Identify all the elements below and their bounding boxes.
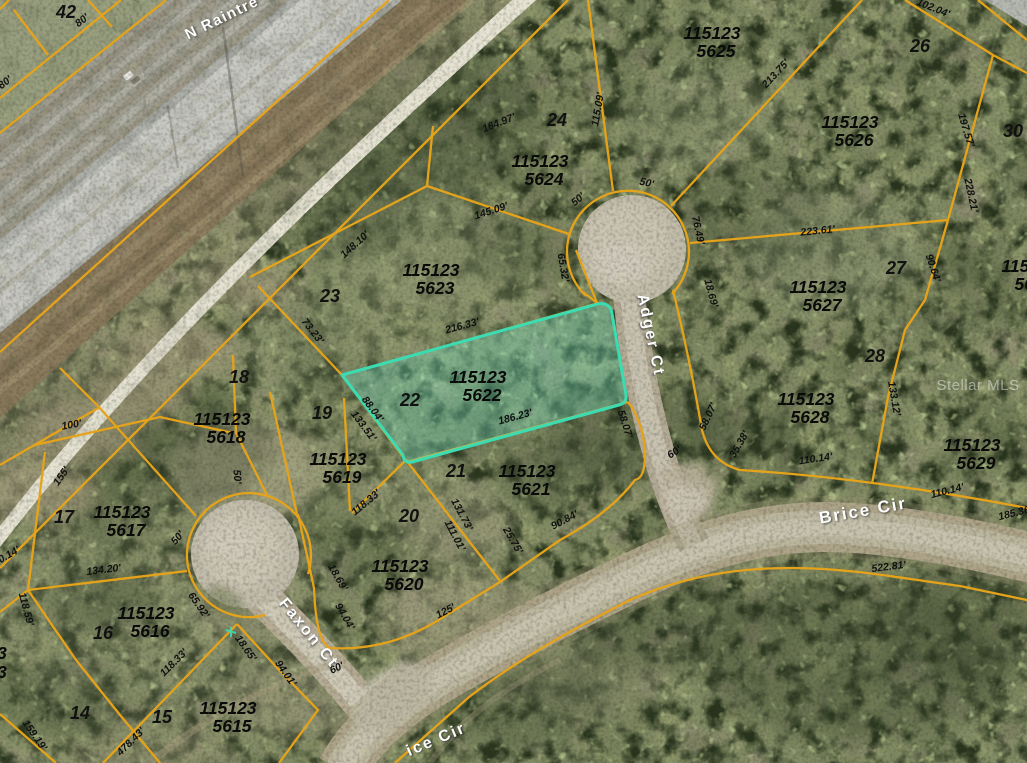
svg-text:115123: 115123: [777, 389, 834, 409]
svg-text:15: 15: [152, 707, 173, 727]
svg-text:115123: 115123: [402, 260, 459, 280]
svg-text:5622: 5622: [463, 385, 502, 405]
svg-text:5617: 5617: [107, 520, 147, 540]
svg-text:23: 23: [319, 286, 340, 306]
svg-text:115123: 115123: [193, 409, 250, 429]
svg-text:5623: 5623: [416, 278, 455, 298]
svg-text:115123: 115123: [199, 698, 256, 718]
svg-text:115123: 115123: [943, 435, 1000, 455]
svg-text:115123: 115123: [449, 367, 506, 387]
svg-text:115123: 115123: [1001, 256, 1027, 276]
svg-text:30: 30: [1003, 121, 1023, 141]
svg-text:5621: 5621: [512, 479, 551, 499]
svg-text:16: 16: [93, 623, 114, 643]
svg-text:42: 42: [55, 2, 76, 22]
svg-text:5627: 5627: [803, 295, 843, 315]
svg-text:115123: 115123: [498, 461, 555, 481]
svg-text:5619: 5619: [323, 467, 362, 487]
svg-text:21: 21: [445, 461, 466, 481]
svg-text:26: 26: [909, 36, 931, 56]
svg-text:24: 24: [546, 110, 567, 130]
svg-text:3: 3: [0, 662, 7, 682]
svg-text:17: 17: [54, 507, 75, 527]
svg-text:20: 20: [398, 506, 419, 526]
svg-text:5616: 5616: [131, 621, 170, 641]
svg-text:5620: 5620: [385, 574, 424, 594]
svg-text:115123: 115123: [789, 277, 846, 297]
svg-text:115123: 115123: [371, 556, 428, 576]
svg-text:115123: 115123: [309, 449, 366, 469]
svg-text:5629: 5629: [957, 453, 996, 473]
svg-text:19: 19: [312, 403, 332, 423]
svg-text:5625: 5625: [697, 41, 736, 61]
svg-text:115123: 115123: [117, 603, 174, 623]
svg-text:5626: 5626: [835, 130, 874, 150]
svg-text:27: 27: [885, 258, 907, 278]
svg-text:3: 3: [0, 643, 7, 663]
svg-text:Stellar MLS: Stellar MLS: [936, 377, 1019, 394]
svg-text:5624: 5624: [525, 169, 564, 189]
svg-text:5618: 5618: [207, 427, 246, 447]
svg-text:115123: 115123: [511, 151, 568, 171]
svg-text:115123: 115123: [93, 502, 150, 522]
svg-text:5628: 5628: [791, 407, 830, 427]
svg-text:50': 50': [230, 469, 243, 485]
svg-text:5615: 5615: [213, 716, 252, 736]
svg-text:18: 18: [229, 367, 249, 387]
svg-text:5630: 5630: [1015, 274, 1027, 294]
svg-text:22: 22: [399, 390, 420, 410]
svg-text:115123: 115123: [683, 23, 740, 43]
svg-text:28: 28: [864, 346, 885, 366]
svg-text:115123: 115123: [821, 112, 878, 132]
svg-text:14: 14: [70, 703, 90, 723]
